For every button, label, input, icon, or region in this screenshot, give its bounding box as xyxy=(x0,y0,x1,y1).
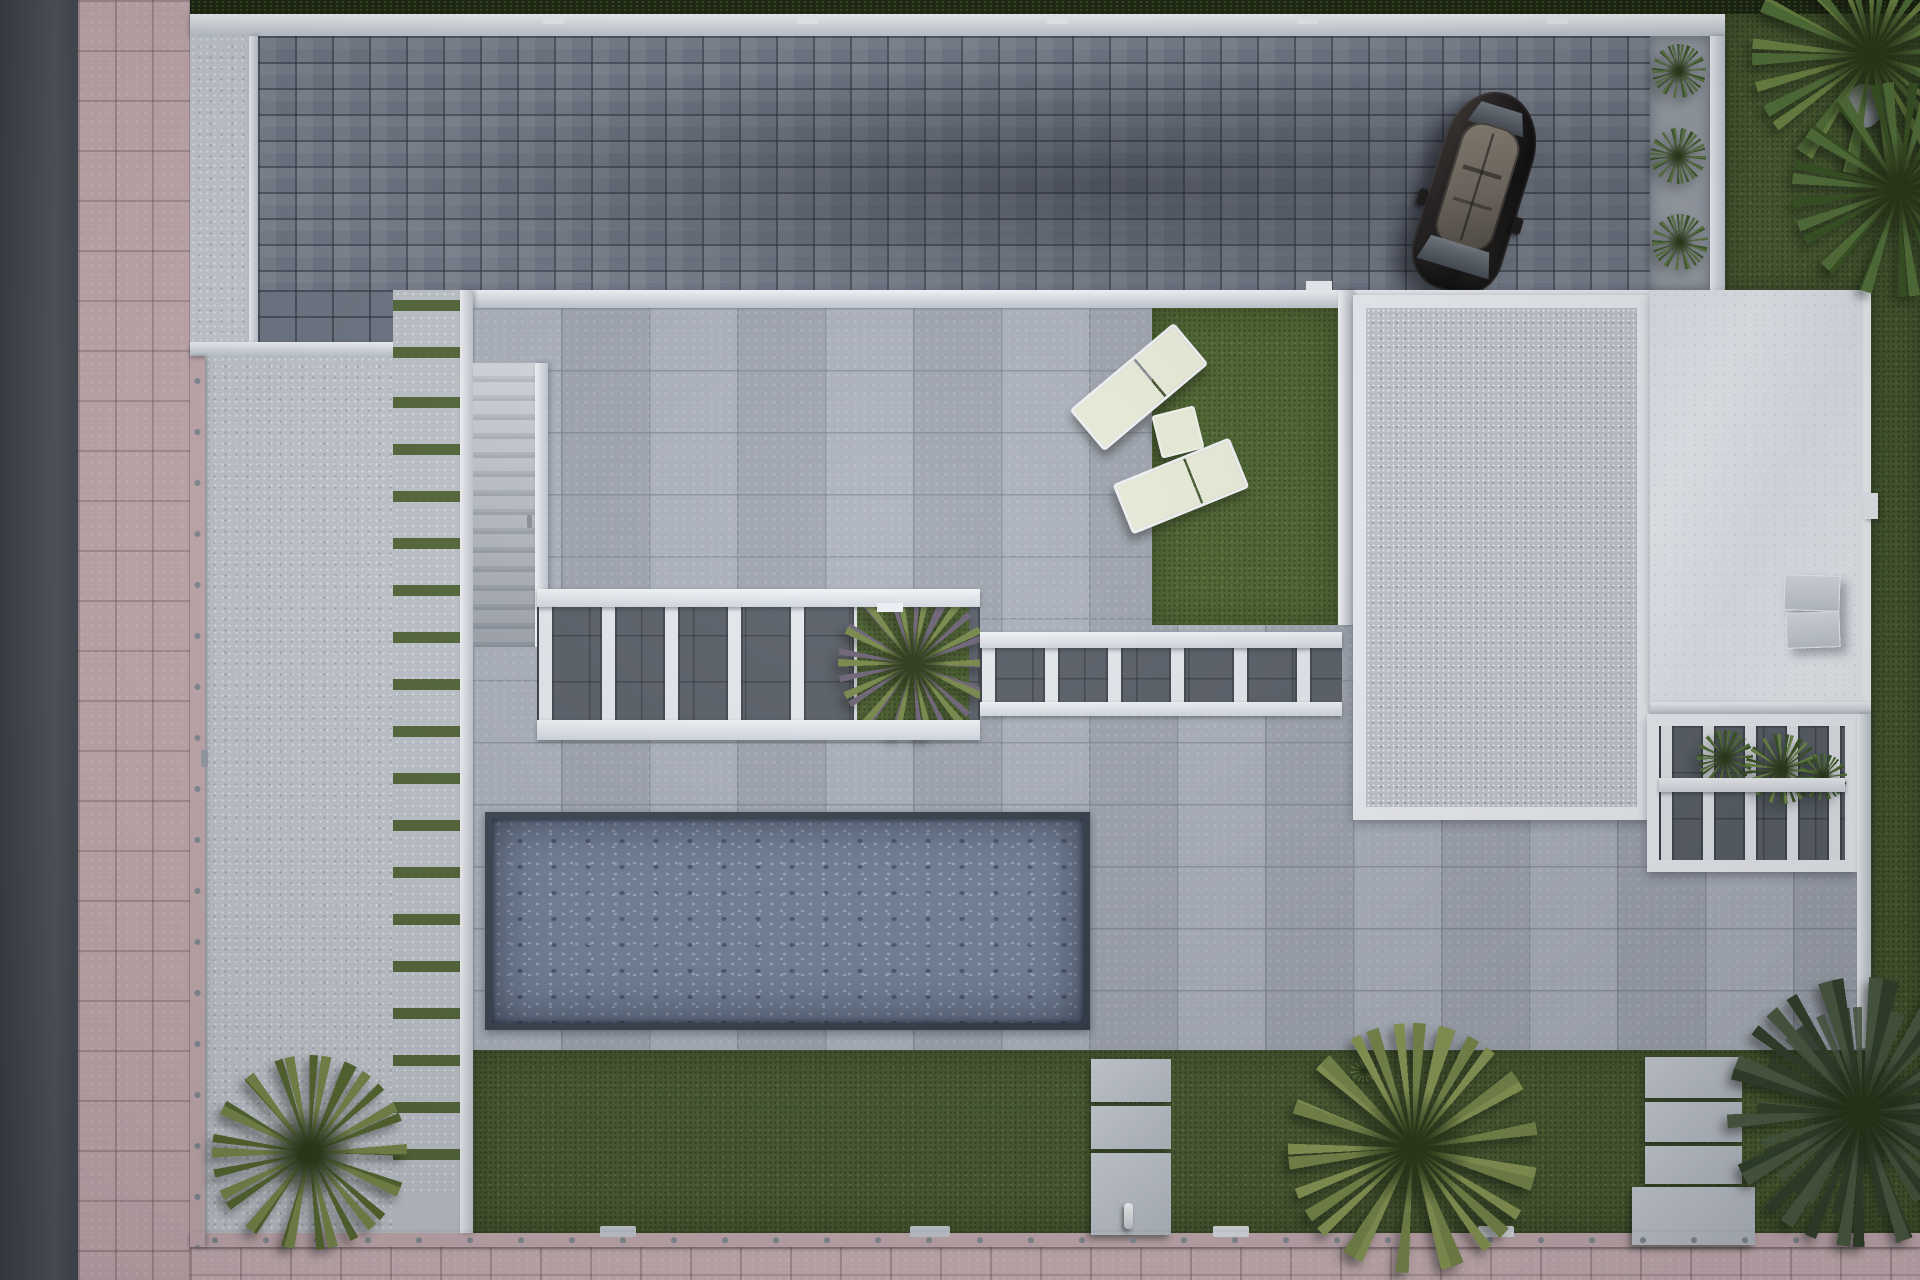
walkway-end-landing xyxy=(393,1192,460,1233)
gate-handle xyxy=(201,750,208,767)
gravel-flat-roof xyxy=(1353,295,1650,820)
pergola-beam xyxy=(537,589,980,607)
car-panoramic-roof xyxy=(1430,117,1525,257)
walkway-edge-wall xyxy=(460,290,473,1233)
pool-water xyxy=(492,819,1083,1023)
pergola-beam xyxy=(980,702,1342,716)
driveway-drain-cap xyxy=(1306,281,1332,291)
pergola-slats xyxy=(980,648,1342,702)
car-mirror-left xyxy=(1416,188,1430,207)
wall-cap xyxy=(1047,15,1068,24)
palm-tree-bottom-left xyxy=(212,1055,407,1250)
ac-unit xyxy=(1783,574,1840,612)
swimming-pool xyxy=(485,812,1090,1030)
roof-bottom-wall xyxy=(1650,702,1871,714)
car-body xyxy=(1402,80,1550,304)
outdoor-staircase xyxy=(473,363,535,647)
rear-pergola xyxy=(1647,714,1857,872)
left-perimeter-wall xyxy=(190,356,205,1247)
car-mirror-right xyxy=(1510,217,1524,236)
agave-plant xyxy=(1652,214,1708,270)
agave-plant xyxy=(1652,44,1706,98)
staircase-handle xyxy=(527,515,532,528)
street-road xyxy=(0,0,78,1280)
tropical-plant xyxy=(838,589,988,739)
paver-driveway-extension xyxy=(258,290,393,342)
wall-cap xyxy=(1547,15,1568,24)
pergola-slatted-walk-left xyxy=(537,589,980,740)
entry-path xyxy=(190,36,256,356)
wall-cap xyxy=(543,15,564,24)
palm-tree-bottom-centre xyxy=(1288,1023,1538,1273)
planter-edge xyxy=(877,603,903,612)
wall-cap xyxy=(797,15,818,24)
sidewalk-bottom xyxy=(190,1247,1920,1280)
gravel-surface xyxy=(1366,308,1637,807)
garden-sprinkler xyxy=(1124,1203,1133,1229)
driveway-left-wall xyxy=(249,36,258,342)
ac-unit xyxy=(1785,611,1840,649)
stepping-stone xyxy=(1091,1106,1171,1149)
pergola-beam xyxy=(1659,778,1845,792)
boundary-hedge xyxy=(190,0,1920,14)
stepping-walkway xyxy=(393,290,460,1233)
pergola-beam xyxy=(537,720,980,740)
pergola-plant xyxy=(1799,754,1847,800)
pergola-beam xyxy=(980,632,1342,648)
roof-access-hatch xyxy=(1864,493,1878,519)
top-perimeter-wall xyxy=(190,14,1725,36)
bottom-perimeter-wall xyxy=(190,1232,1920,1247)
car-roof-glass-grid xyxy=(1442,128,1513,247)
wall-cap xyxy=(1297,15,1318,24)
stepping-stone xyxy=(1091,1059,1171,1102)
parked-suv xyxy=(1390,85,1562,299)
sidewalk-left xyxy=(78,0,190,1280)
agave-plant xyxy=(1650,128,1706,184)
aerial-villa-render xyxy=(0,0,1920,1280)
planting-strip-wall xyxy=(1710,36,1725,290)
turf-patch-wall xyxy=(1338,290,1353,625)
pergola-slatted-walk-right xyxy=(980,632,1342,716)
courtyard-top-wall xyxy=(190,342,393,356)
stepping-stone xyxy=(1645,1146,1742,1184)
